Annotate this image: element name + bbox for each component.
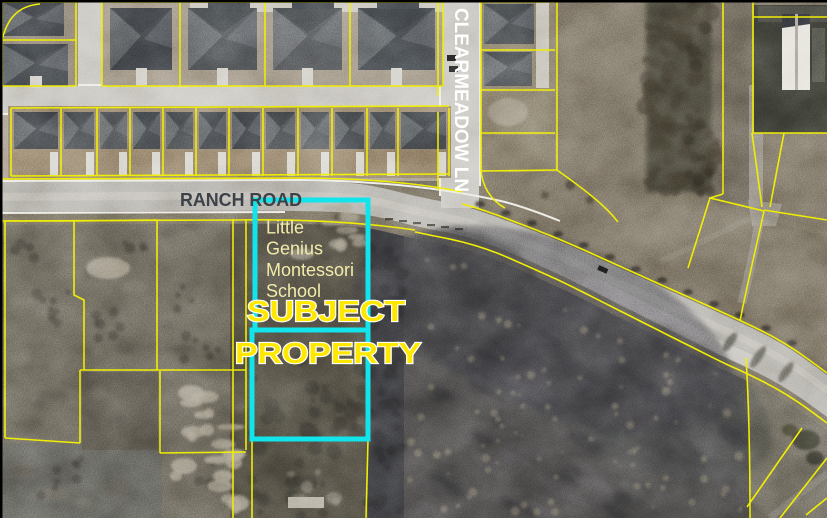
svg-text:SUBJECT: SUBJECT [247, 296, 405, 328]
svg-text:Little: Little [266, 218, 304, 238]
svg-text:RANCH ROAD: RANCH ROAD [180, 190, 302, 210]
svg-text:Genius: Genius [266, 239, 323, 259]
svg-text:Montessori: Montessori [266, 260, 354, 280]
svg-text:CLEARMEADOW LN: CLEARMEADOW LN [450, 8, 471, 192]
svg-text:PROPERTY: PROPERTY [235, 338, 421, 370]
